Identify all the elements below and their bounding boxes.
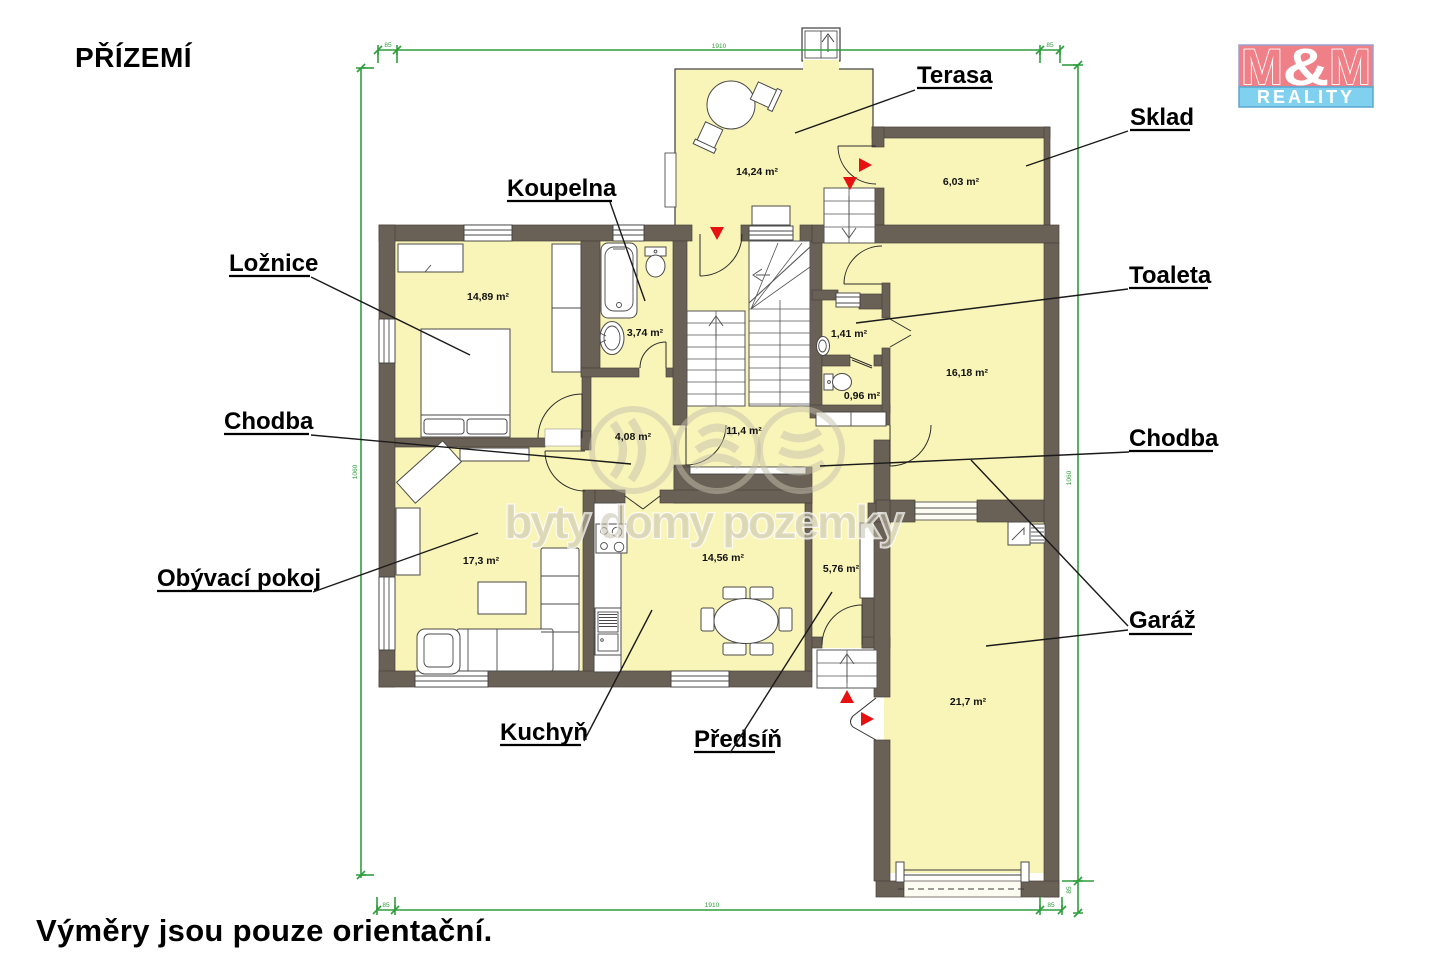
svg-text:85: 85 <box>1047 902 1055 909</box>
svg-text:5,76 m²: 5,76 m² <box>823 563 860 575</box>
svg-text:17,3 m²: 17,3 m² <box>463 555 500 567</box>
svg-text:11,4 m²: 11,4 m² <box>726 425 762 437</box>
svg-text:14,56 m²: 14,56 m² <box>702 552 745 564</box>
svg-text:0,96 m²: 0,96 m² <box>844 390 881 402</box>
svg-text:85: 85 <box>1046 42 1054 49</box>
svg-text:1060: 1060 <box>1066 470 1073 485</box>
svg-text:REALITY: REALITY <box>1257 87 1355 107</box>
svg-text:21,7 m²: 21,7 m² <box>950 696 987 708</box>
svg-text:Chodba: Chodba <box>1129 425 1219 452</box>
svg-text:PŘÍZEMÍ: PŘÍZEMÍ <box>75 42 193 73</box>
svg-text:16,18 m²: 16,18 m² <box>946 367 989 379</box>
svg-text:1910: 1910 <box>705 902 720 909</box>
svg-text:Kuchyň: Kuchyň <box>500 719 588 746</box>
svg-text:14,24 m²: 14,24 m² <box>736 166 779 178</box>
svg-text:14,89 m²: 14,89 m² <box>467 291 510 303</box>
svg-text:Ložnice: Ložnice <box>229 250 318 277</box>
svg-text:6,03 m²: 6,03 m² <box>943 176 980 188</box>
svg-text:Obývací pokoj: Obývací pokoj <box>157 565 321 592</box>
svg-text:Koupelna: Koupelna <box>507 175 617 202</box>
svg-text:85: 85 <box>1066 886 1073 894</box>
svg-text:4,08 m²: 4,08 m² <box>615 431 652 443</box>
svg-text:Terasa: Terasa <box>917 62 993 89</box>
svg-text:1910: 1910 <box>712 43 727 50</box>
svg-text:Výměry jsou pouze orientační.: Výměry jsou pouze orientační. <box>36 913 493 948</box>
svg-text:1,41 m²: 1,41 m² <box>831 328 868 340</box>
svg-text:3,74 m²: 3,74 m² <box>627 327 664 339</box>
svg-text:byty domy pozemky: byty domy pozemky <box>504 496 904 548</box>
svg-text:1060: 1060 <box>352 464 359 479</box>
svg-text:Garáž: Garáž <box>1129 607 1196 634</box>
svg-text:85: 85 <box>384 42 392 49</box>
svg-text:85: 85 <box>382 902 390 909</box>
svg-text:Sklad: Sklad <box>1130 104 1194 131</box>
svg-text:Toaleta: Toaleta <box>1129 262 1212 289</box>
svg-text:Chodba: Chodba <box>224 408 314 435</box>
